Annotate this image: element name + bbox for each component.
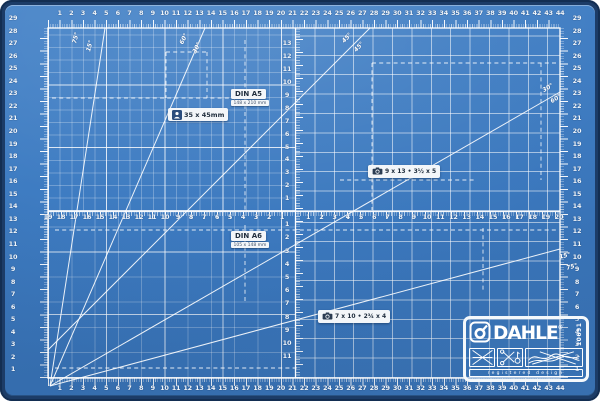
ruler-number: 17	[573, 165, 582, 173]
ruler-number: 6	[285, 130, 289, 138]
ruler-number: 22	[300, 9, 309, 17]
din-a6-label: DIN A6 105 x 148 mm	[231, 231, 269, 248]
ruler-number: 28	[573, 27, 582, 35]
ruler-number: 10	[573, 253, 582, 261]
ruler-number: 13	[283, 39, 292, 47]
ruler-number: 4	[241, 213, 245, 221]
ruler-number: 15	[218, 9, 227, 17]
ruler-number: 1	[285, 194, 289, 202]
ruler-number: 20	[573, 127, 582, 135]
din-a5-title: DIN A5	[231, 89, 266, 99]
din-a6-subtitle: 105 x 148 mm	[231, 242, 269, 248]
ruler-number: 6	[372, 213, 376, 221]
ruler-number: 10	[283, 339, 292, 347]
ruler-number: 6	[11, 303, 15, 311]
ruler-number: 25	[335, 9, 344, 17]
ruler-number: 29	[9, 14, 18, 22]
ruler-number: 21	[573, 114, 582, 122]
ruler-number: 17	[242, 384, 251, 392]
ruler-number: 38	[486, 9, 495, 17]
ruler-number: 8	[575, 278, 579, 286]
ruler-number: 43	[544, 384, 553, 392]
ruler-number: 36	[463, 384, 472, 392]
ruler-number: 30	[393, 9, 402, 17]
pictogram-row	[469, 348, 583, 367]
ruler-number: 16	[230, 384, 239, 392]
ruler-number: 10	[283, 78, 292, 86]
ruler-number: 19	[9, 140, 18, 148]
ruler-number: 8	[139, 9, 143, 17]
ruler-number: 27	[9, 39, 18, 47]
ruler-number: 6	[215, 213, 219, 221]
ruler-number: 3	[332, 213, 336, 221]
registered-trademark-symbol: ®	[558, 326, 563, 332]
ruler-number: 7	[11, 290, 15, 298]
ruler-number: 27	[573, 39, 582, 47]
ruler-number: 4	[285, 260, 289, 268]
ruler-number: 33	[428, 9, 437, 17]
ruler-number: 41	[521, 384, 530, 392]
ruler-number: 36	[463, 9, 472, 17]
ruler-number: 11	[436, 213, 445, 221]
ruler-number: 17	[9, 165, 18, 173]
ruler-number: 24	[573, 77, 582, 85]
ruler-number: 40	[509, 9, 518, 17]
ruler-number: 27	[358, 384, 367, 392]
pictogram-cross-icon	[469, 348, 495, 367]
left-ruler-ticks	[40, 28, 48, 378]
ruler-number: 20	[276, 384, 285, 392]
ruler-number: 29	[573, 14, 582, 22]
ruler-number: 15	[489, 213, 498, 221]
ruler-number: 6	[285, 286, 289, 294]
ruler-number: 39	[498, 384, 507, 392]
ruler-number: 31	[405, 9, 414, 17]
ruler-number: 25	[335, 384, 344, 392]
ruler-number: 13	[195, 384, 204, 392]
ruler-number: 10	[160, 9, 169, 17]
ruler-number: 18	[253, 9, 262, 17]
ruler-number: 23	[311, 384, 320, 392]
photo-size-text: 7 x 10 • 2¾ x 4	[335, 313, 386, 320]
ruler-number: 13	[462, 213, 471, 221]
ruler-number: 1	[57, 9, 61, 17]
camera-icon	[372, 167, 383, 177]
ruler-number: 42	[533, 9, 542, 17]
din-a6-title: DIN A6	[231, 231, 266, 241]
ruler-number: 21	[9, 114, 18, 122]
ruler-number: 5	[285, 143, 289, 151]
ruler-number: 19	[541, 213, 550, 221]
ruler-number: 14	[9, 202, 18, 210]
ruler-number: 29	[381, 9, 390, 17]
ruler-number: 2	[285, 233, 289, 241]
ruler-number: 26	[346, 9, 355, 17]
ruler-number: 4	[92, 384, 96, 392]
ruler-number: 17	[242, 9, 251, 17]
ruler-number: 37	[474, 9, 483, 17]
ruler-number: 12	[573, 227, 582, 235]
ruler-number: 22	[573, 102, 582, 110]
ruler-number: 3	[11, 340, 15, 348]
ruler-number: 34	[439, 9, 448, 17]
ruler-number: 4	[92, 9, 96, 17]
passport-size-text: 35 x 45mm	[184, 111, 224, 119]
ruler-number: 31	[405, 384, 414, 392]
ruler-number: 6	[116, 384, 120, 392]
ruler-number: 18	[57, 213, 66, 221]
brand-row: DAHLE ® 10691	[469, 321, 583, 347]
ruler-number: 9	[412, 213, 416, 221]
ruler-number: 14	[573, 202, 582, 210]
ruler-number: 6	[116, 9, 120, 17]
ruler-number: 21	[288, 384, 297, 392]
ruler-number: 19	[265, 9, 274, 17]
ruler-number: 21	[288, 9, 297, 17]
ruler-number: 13	[195, 9, 204, 17]
ruler-number: 44	[556, 9, 565, 17]
ruler-number: 17	[515, 213, 524, 221]
ruler-number: 25	[9, 64, 18, 72]
ruler-number: 20	[555, 213, 564, 221]
ruler-number: 28	[370, 384, 379, 392]
ruler-number: 8	[189, 213, 193, 221]
ruler-number: 2	[11, 353, 15, 361]
ruler-number: 26	[346, 384, 355, 392]
ruler-number: 30	[393, 384, 402, 392]
ruler-number: 5	[359, 213, 363, 221]
ruler-number: 33	[428, 384, 437, 392]
ruler-number: 1	[306, 213, 310, 221]
dahle-logo-plate: DAHLE ® 10691 registered design	[463, 316, 589, 382]
ruler-number: 1	[57, 384, 61, 392]
ruler-number: 4	[11, 328, 15, 336]
ruler-number: 40	[509, 384, 518, 392]
din-a5-subtitle: 148 x 210 mm	[231, 100, 269, 106]
ruler-number: 20	[276, 9, 285, 17]
ruler-number: 19	[573, 140, 582, 148]
ruler-number: 9	[151, 384, 155, 392]
ruler-number: 22	[300, 384, 309, 392]
ruler-number: 11	[148, 213, 157, 221]
ruler-number: 7	[127, 384, 131, 392]
photo-size-label-7x10: 7 x 10 • 2¾ x 4	[318, 310, 390, 323]
ruler-number: 6	[575, 303, 579, 311]
scissors-knife-icon	[497, 348, 523, 367]
ruler-number: 11	[283, 352, 292, 360]
ruler-number: 12	[449, 213, 458, 221]
brand-name: DAHLE ®	[493, 325, 574, 344]
din-a5-label: DIN A5 148 x 210 mm	[231, 89, 269, 106]
ruler-number: 7	[127, 9, 131, 17]
ruler-number: 39	[498, 9, 507, 17]
ruler-number: 7	[385, 213, 389, 221]
dahle-logo-mark-icon	[469, 321, 491, 347]
ruler-number: 1	[285, 220, 289, 228]
ruler-number: 8	[139, 384, 143, 392]
ruler-number: 23	[311, 9, 320, 17]
ruler-number: 8	[11, 278, 15, 286]
registered-design-strip: registered design	[469, 369, 583, 377]
ruler-number: 13	[573, 215, 582, 223]
camera-icon	[322, 312, 333, 322]
ruler-number: 35	[451, 384, 460, 392]
ruler-number: 34	[439, 384, 448, 392]
ruler-number: 3	[254, 213, 258, 221]
ruler-number: 24	[323, 384, 332, 392]
ruler-number: 15	[96, 213, 105, 221]
model-number: 10691	[576, 322, 583, 346]
ruler-number: 10	[9, 253, 18, 261]
ruler-number: 9	[285, 91, 289, 99]
ruler-number: 37	[474, 384, 483, 392]
ruler-number: 9	[11, 265, 15, 273]
ruler-number: 23	[573, 89, 582, 97]
ruler-number: 5	[285, 273, 289, 281]
ruler-number: 12	[135, 213, 144, 221]
ruler-number: 16	[9, 177, 18, 185]
ruler-number: 32	[416, 384, 425, 392]
ruler-number: 8	[398, 213, 402, 221]
ruler-number: 8	[285, 313, 289, 321]
ruler-number: 12	[9, 227, 18, 235]
ruler-number: 5	[104, 9, 108, 17]
ruler-number: 25	[573, 64, 582, 72]
ruler-number: 10	[423, 213, 432, 221]
center-vertical-ruler-ticks	[296, 28, 303, 378]
ruler-number: 3	[81, 384, 85, 392]
ruler-number: 11	[9, 240, 18, 248]
ruler-number: 14	[109, 213, 118, 221]
ruler-number: 1	[11, 365, 15, 373]
ruler-number: 18	[528, 213, 537, 221]
ruler-number: 19	[44, 213, 53, 221]
ruler-number: 44	[556, 384, 565, 392]
ruler-number: 32	[416, 9, 425, 17]
ruler-number: 13	[9, 215, 18, 223]
ruler-number: 18	[9, 152, 18, 160]
ruler-number: 14	[207, 9, 216, 17]
ruler-number: 18	[573, 152, 582, 160]
ruler-number: 9	[176, 213, 180, 221]
grid-quadrant-upper-right	[295, 28, 560, 211]
ruler-number: 3	[81, 9, 85, 17]
ruler-number: 24	[9, 77, 18, 85]
ruler-number: 16	[83, 213, 92, 221]
ruler-number: 2	[69, 9, 73, 17]
ruler-number: 42	[533, 384, 542, 392]
ruler-number: 7	[285, 299, 289, 307]
ruler-number: 13	[122, 213, 131, 221]
ruler-number: 11	[172, 384, 181, 392]
ruler-number: 29	[381, 384, 390, 392]
ruler-number: 9	[285, 326, 289, 334]
ruler-number: 15	[218, 384, 227, 392]
ruler-number: 26	[573, 52, 582, 60]
ruler-number: 38	[486, 384, 495, 392]
ruler-number: 9	[151, 9, 155, 17]
ruler-number: 14	[207, 384, 216, 392]
top-ruler-ticks	[48, 20, 560, 28]
ruler-number: 11	[172, 9, 181, 17]
ruler-number: 5	[228, 213, 232, 221]
ruler-number: 23	[9, 89, 18, 97]
brand-name-text: DAHLE	[493, 325, 558, 344]
ruler-number: 14	[475, 213, 484, 221]
ruler-number: 5	[104, 384, 108, 392]
ruler-number: 28	[370, 9, 379, 17]
ruler-number: 3	[285, 247, 289, 255]
ruler-number: 7	[285, 117, 289, 125]
ruler-number: 2	[267, 213, 271, 221]
photo-size-label-9x13: 9 x 13 • 3½ x 5	[368, 165, 440, 178]
ruler-number: 12	[283, 52, 292, 60]
ruler-number: 20	[9, 127, 18, 135]
passport-size-label: 35 x 45mm	[168, 108, 228, 121]
portrait-icon	[172, 110, 182, 120]
registered-design-text: registered design	[488, 371, 565, 376]
ruler-number: 12	[183, 384, 192, 392]
ruler-number: 2	[319, 213, 323, 221]
ruler-number: 10	[160, 384, 169, 392]
ruler-number: 35	[451, 9, 460, 17]
ruler-number: 15	[9, 190, 18, 198]
ruler-number: 26	[9, 52, 18, 60]
ruler-number: 1	[280, 213, 284, 221]
ruler-number: 4	[285, 155, 289, 163]
ruler-number: 4	[346, 213, 350, 221]
ruler-number: 11	[573, 240, 582, 248]
ruler-number: 27	[358, 9, 367, 17]
ruler-number: 2	[285, 181, 289, 189]
ruler-number: 7	[575, 290, 579, 298]
ruler-number: 22	[9, 102, 18, 110]
ruler-number: 41	[521, 9, 530, 17]
ruler-number: 16	[573, 177, 582, 185]
ruler-number: 28	[9, 27, 18, 35]
ruler-number: 11	[283, 65, 292, 73]
ruler-number: 7	[202, 213, 206, 221]
ruler-number: 17	[70, 213, 79, 221]
ruler-number: 19	[265, 384, 274, 392]
ruler-number: 3	[285, 168, 289, 176]
ruler-number: 15	[573, 190, 582, 198]
ruler-number: 16	[502, 213, 511, 221]
ruler-number: 24	[323, 9, 332, 17]
ruler-number: 5	[11, 315, 15, 323]
ruler-number: 18	[253, 384, 262, 392]
ruler-number: 8	[285, 104, 289, 112]
ruler-number: 12	[183, 9, 192, 17]
ruler-number: 43	[544, 9, 553, 17]
ruler-number: 10	[161, 213, 170, 221]
ruler-number: 2	[69, 384, 73, 392]
pictogram-curves-icon	[525, 348, 583, 367]
photo-size-text: 9 x 13 • 3½ x 5	[385, 168, 436, 175]
ruler-number: 16	[230, 9, 239, 17]
